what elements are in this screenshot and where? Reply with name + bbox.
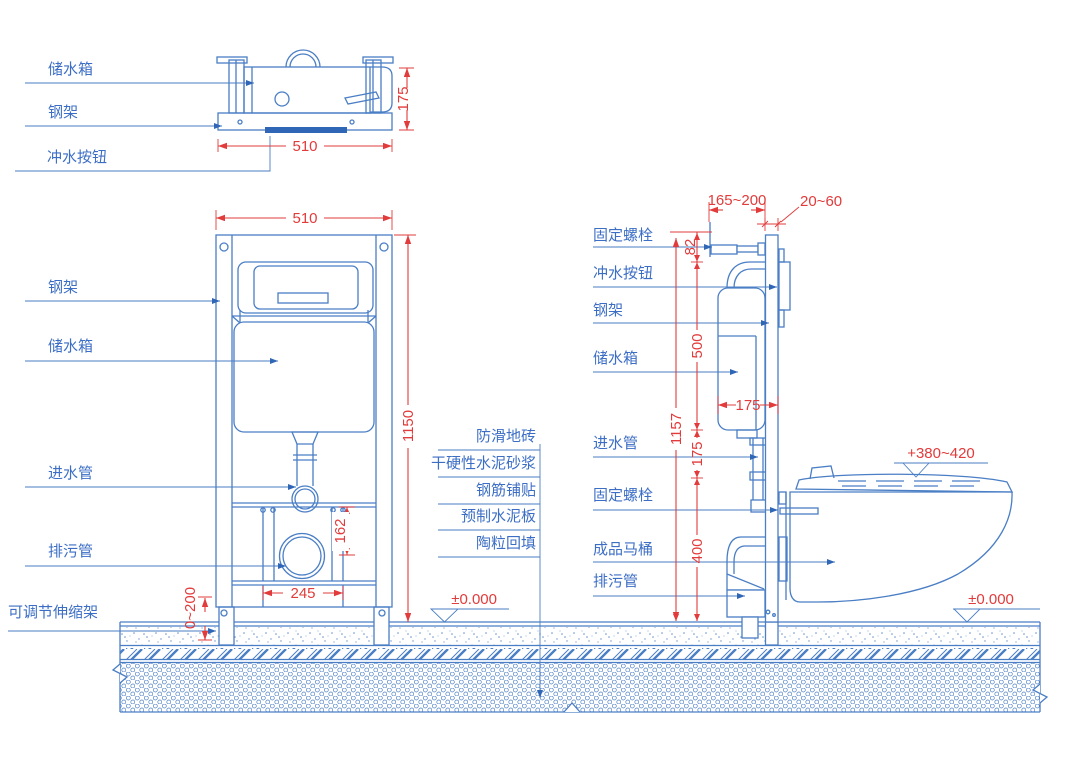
dim-height-1150: 1150 bbox=[394, 235, 417, 622]
dim-width-510-front: 510 bbox=[216, 210, 392, 230]
front-label-inlet: 进水管 bbox=[48, 465, 93, 482]
svg-text:20~60: 20~60 bbox=[800, 193, 842, 210]
side-label-inlet: 进水管 bbox=[593, 435, 638, 452]
level-mark-center: ±0.000 bbox=[431, 591, 509, 622]
svg-text:±0.000: ±0.000 bbox=[968, 591, 1014, 608]
level-mark-floor-right: ±0.000 bbox=[953, 591, 1040, 622]
side-label-bolt: 固定螺栓 bbox=[593, 487, 653, 504]
svg-text:162: 162 bbox=[332, 518, 349, 543]
front-view: 钢架 储水箱 进水管 排污管 可调节伸缩架 510 1150 162 bbox=[8, 210, 417, 645]
front-label-frame: 钢架 bbox=[48, 279, 78, 296]
side-label-drain: 排污管 bbox=[593, 573, 638, 590]
level-mark-seat: +380~420 bbox=[894, 445, 988, 477]
dim-chain-vertical: 1157 82 500 175 400 bbox=[668, 232, 712, 621]
svg-text:165~200: 165~200 bbox=[708, 192, 767, 209]
toilet-bowl bbox=[779, 466, 1012, 602]
front-label-drain: 排污管 bbox=[48, 543, 93, 560]
side-label-flush-button: 冲水按钮 bbox=[593, 265, 653, 282]
dim-depth-175: 175 bbox=[395, 68, 414, 130]
dim-drain-span-245: 245 bbox=[263, 585, 343, 602]
dim-width-510-top: 510 bbox=[218, 138, 392, 155]
cistern-side bbox=[718, 262, 767, 512]
wall-frame-panel bbox=[766, 235, 779, 645]
rebar-layer bbox=[120, 648, 1040, 659]
svg-text:1150: 1150 bbox=[400, 410, 417, 442]
dim-finish-20-60: 20~60 bbox=[757, 193, 842, 231]
flush-button-bar bbox=[265, 127, 347, 133]
frame-front-drawing bbox=[216, 235, 392, 645]
svg-text:82: 82 bbox=[682, 239, 699, 256]
svg-text:0~200: 0~200 bbox=[182, 587, 199, 629]
front-label-telescopic: 可调节伸缩架 bbox=[8, 604, 98, 621]
flush-button-plate bbox=[779, 249, 790, 327]
layer-label-precast: 预制水泥板 bbox=[461, 507, 536, 525]
side-label-toilet: 成品马桶 bbox=[593, 541, 653, 558]
top-view: 储水箱 钢架 冲水按钮 175 510 bbox=[15, 50, 414, 171]
svg-text:245: 245 bbox=[290, 585, 315, 602]
side-label-frame: 钢架 bbox=[593, 302, 623, 319]
layer-label-mortar: 干硬性水泥砂浆 bbox=[431, 454, 536, 472]
top-view-label-tank: 储水箱 bbox=[48, 61, 93, 78]
dim-drain-offset-162: 162 bbox=[332, 507, 355, 555]
side-label-tank: 储水箱 bbox=[593, 350, 638, 367]
svg-text:400: 400 bbox=[689, 538, 706, 563]
ceramsite-layer bbox=[120, 663, 1040, 712]
drain-elbow bbox=[727, 537, 765, 638]
svg-text:±0.000: ±0.000 bbox=[451, 591, 497, 608]
front-label-tank: 储水箱 bbox=[48, 338, 93, 355]
cistern-top-view-drawing bbox=[217, 50, 393, 130]
layer-label-ceramsite: 陶粒回填 bbox=[476, 535, 536, 552]
floor-section bbox=[113, 622, 1047, 712]
dim-offset-165-200: 165~200 bbox=[708, 192, 767, 222]
layer-label-tile: 防滑地砖 bbox=[476, 428, 536, 445]
svg-text:510: 510 bbox=[292, 210, 317, 227]
top-view-label-button: 冲水按钮 bbox=[47, 149, 107, 166]
fixing-bolt-top-assembly bbox=[710, 222, 765, 257]
svg-text:175: 175 bbox=[689, 441, 706, 466]
toilet-installation-drawing: 储水箱 钢架 冲水按钮 175 510 bbox=[0, 0, 1080, 762]
cad-drawing-page: 储水箱 钢架 冲水按钮 175 510 bbox=[0, 0, 1080, 762]
top-view-label-frame: 钢架 bbox=[48, 104, 78, 121]
side-view: 固定螺栓 冲水按钮 钢架 储水箱 进水管 固定螺栓 成品马桶 排污管 165~2… bbox=[593, 192, 1040, 645]
mortar-layer bbox=[120, 627, 1040, 645]
svg-text:175: 175 bbox=[395, 86, 412, 111]
svg-text:500: 500 bbox=[689, 333, 706, 358]
svg-text:+380~420: +380~420 bbox=[907, 445, 975, 462]
svg-text:175: 175 bbox=[735, 397, 760, 414]
side-label-bolt-top: 固定螺栓 bbox=[593, 227, 653, 244]
svg-text:510: 510 bbox=[292, 138, 317, 155]
layer-label-rebar: 钢筋铺贴 bbox=[476, 482, 536, 499]
svg-text:1157: 1157 bbox=[668, 413, 685, 445]
